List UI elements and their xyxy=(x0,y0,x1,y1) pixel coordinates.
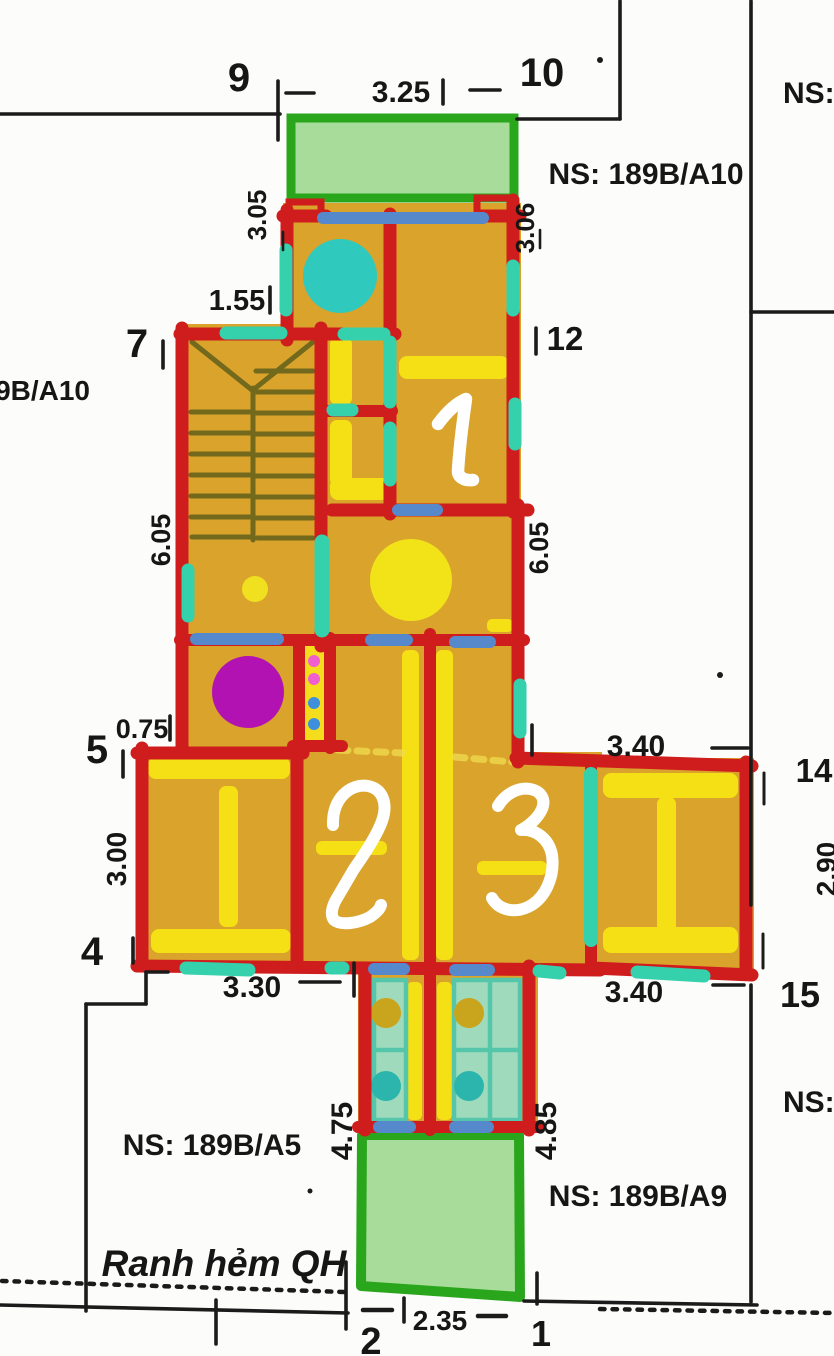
svg-text:NS:: NS: xyxy=(783,77,834,110)
svg-text:14: 14 xyxy=(796,752,833,789)
svg-text:7: 7 xyxy=(126,322,148,366)
svg-text:3.40: 3.40 xyxy=(607,730,665,763)
svg-text:2.90: 2.90 xyxy=(811,842,834,897)
svg-text:5: 5 xyxy=(86,728,108,772)
svg-text:4.75: 4.75 xyxy=(326,1102,359,1160)
svg-text:1.55: 1.55 xyxy=(209,285,265,317)
svg-text:6.05: 6.05 xyxy=(146,514,176,567)
svg-text:1: 1 xyxy=(531,1313,551,1354)
svg-text:2.35: 2.35 xyxy=(413,1305,468,1336)
svg-text:15: 15 xyxy=(780,974,820,1015)
svg-text:10: 10 xyxy=(520,51,565,95)
svg-text:4: 4 xyxy=(81,930,104,974)
svg-text:9: 9 xyxy=(228,56,250,100)
svg-text:3.30: 3.30 xyxy=(223,971,281,1004)
svg-text:4.85: 4.85 xyxy=(530,1102,563,1160)
svg-text:3.06: 3.06 xyxy=(510,203,540,254)
svg-text:9B/A10: 9B/A10 xyxy=(0,375,90,406)
svg-text:NS:: NS: xyxy=(783,1086,834,1119)
svg-text:NS: 189B/A10: NS: 189B/A10 xyxy=(548,158,743,191)
svg-text:0.75: 0.75 xyxy=(116,714,169,744)
svg-text:12: 12 xyxy=(547,320,584,357)
svg-text:NS: 189B/A9: NS: 189B/A9 xyxy=(549,1180,727,1213)
svg-text:NS: 189B/A5: NS: 189B/A5 xyxy=(123,1129,301,1162)
svg-text:2: 2 xyxy=(360,1321,381,1356)
svg-text:3.25: 3.25 xyxy=(372,76,430,109)
svg-text:6.05: 6.05 xyxy=(524,522,554,575)
svg-text:Ranh hẻm QH: Ranh hẻm QH xyxy=(102,1243,348,1284)
svg-text:3.00: 3.00 xyxy=(101,832,132,887)
svg-text:3.40: 3.40 xyxy=(605,976,663,1009)
svg-text:3.05: 3.05 xyxy=(242,190,272,241)
